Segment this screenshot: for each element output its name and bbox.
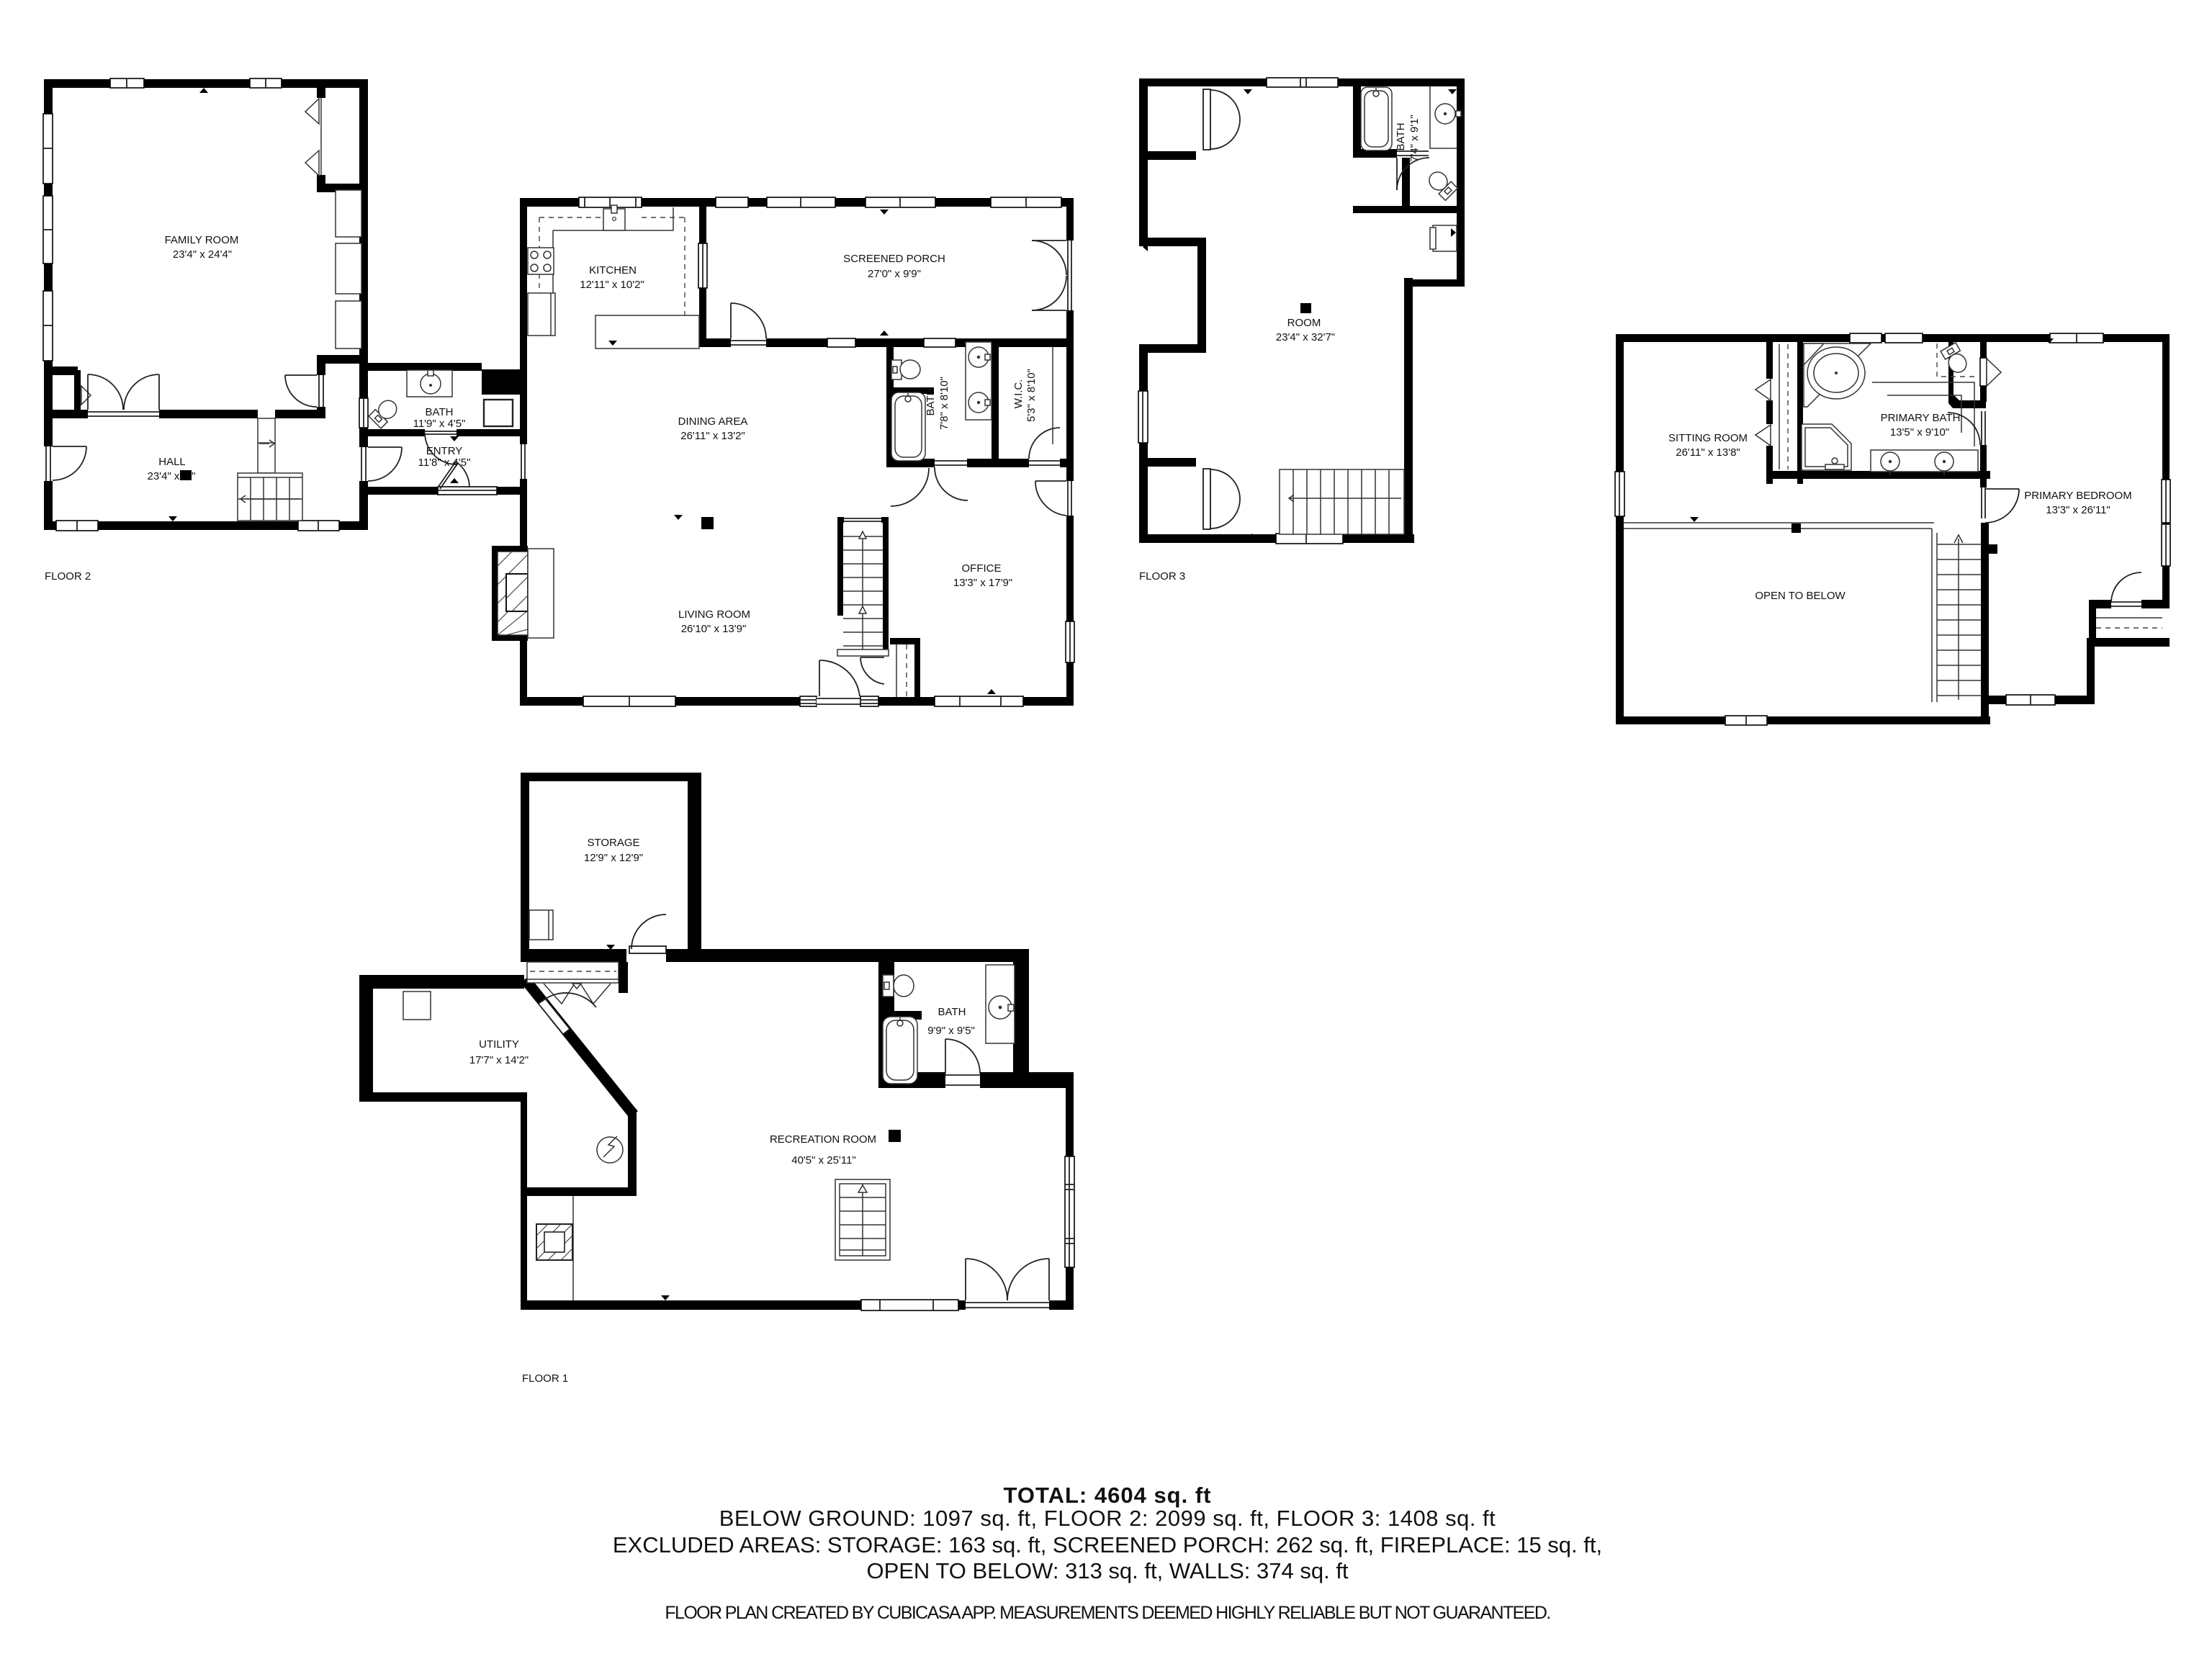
svg-text:HALL: HALL (158, 456, 186, 468)
svg-text:OPEN TO BELOW: 313 sq. ft, WAL: OPEN TO BELOW: 313 sq. ft, WALLS: 374 sq… (866, 1558, 1348, 1583)
svg-text:BATH: BATH (426, 406, 454, 418)
svg-text:40'5" x 25'11": 40'5" x 25'11" (791, 1154, 856, 1166)
svg-text:ENTRY: ENTRY (426, 445, 463, 457)
svg-text:26'11" x 13'8": 26'11" x 13'8" (1676, 446, 1740, 459)
svg-text:12'11" x 10'2": 12'11" x 10'2" (580, 279, 644, 291)
svg-text:7'8" x 8'10": 7'8" x 8'10" (938, 377, 950, 430)
svg-text:RECREATION ROOM: RECREATION ROOM (770, 1133, 876, 1146)
svg-text:DINING AREA: DINING AREA (678, 415, 748, 428)
svg-text:BATH: BATH (1395, 123, 1407, 151)
svg-text:BATH: BATH (925, 388, 937, 416)
svg-text:12'9" x 12'9": 12'9" x 12'9" (584, 852, 643, 864)
svg-text:5'3" x 8'10": 5'3" x 8'10" (1025, 369, 1038, 422)
svg-text:UTILITY: UTILITY (479, 1038, 519, 1051)
svg-text:SITTING ROOM: SITTING ROOM (1668, 432, 1748, 444)
svg-text:ROOM: ROOM (1287, 317, 1321, 329)
svg-text:EXCLUDED AREAS: STORAGE: 163 s: EXCLUDED AREAS: STORAGE: 163 sq. ft, SCR… (613, 1532, 1602, 1557)
svg-text:LIVING ROOM: LIVING ROOM (678, 608, 750, 621)
svg-text:26'11" x 13'2": 26'11" x 13'2" (680, 430, 745, 442)
svg-text:17'7" x 14'2": 17'7" x 14'2" (469, 1054, 529, 1066)
svg-text:13'3" x 17'9": 13'3" x 17'9" (953, 577, 1012, 589)
svg-text:FLOOR 2: FLOOR 2 (45, 570, 91, 583)
svg-text:FLOOR 3: FLOOR 3 (1139, 570, 1185, 583)
svg-text:27'0" x 9'9": 27'0" x 9'9" (868, 268, 921, 280)
svg-text:13'3" x 26'11": 13'3" x 26'11" (2046, 504, 2110, 516)
svg-text:FLOOR PLAN CREATED BY CUBICASA: FLOOR PLAN CREATED BY CUBICASA APP. MEAS… (665, 1603, 1550, 1623)
svg-text:13'5" x 9'10": 13'5" x 9'10" (1890, 426, 1949, 439)
svg-text:26'10" x 13'9": 26'10" x 13'9" (681, 623, 747, 635)
svg-text:OPEN TO BELOW: OPEN TO BELOW (1755, 590, 1845, 602)
svg-text:PRIMARY BATH: PRIMARY BATH (1881, 412, 1961, 424)
svg-text:OFFICE: OFFICE (962, 562, 1002, 575)
svg-text:7'4" x 9'1": 7'4" x 9'1" (1408, 114, 1421, 162)
svg-text:STORAGE: STORAGE (587, 837, 639, 849)
svg-text:BATH: BATH (938, 1006, 966, 1018)
svg-text:TOTAL: 4604 sq. ft: TOTAL: 4604 sq. ft (1003, 1483, 1211, 1508)
svg-text:11'8" x 4'5": 11'8" x 4'5" (418, 457, 471, 469)
svg-text:9'9" x 9'5": 9'9" x 9'5" (927, 1025, 975, 1037)
svg-text:11'9" x 4'5": 11'9" x 4'5" (413, 418, 466, 430)
svg-text:23'4" x 24'4": 23'4" x 24'4" (173, 248, 232, 261)
svg-text:PRIMARY BEDROOM: PRIMARY BEDROOM (2024, 490, 2131, 502)
svg-text:KITCHEN: KITCHEN (589, 264, 637, 276)
svg-text:W.I.C.: W.I.C. (1012, 379, 1025, 409)
svg-text:23'4" x 32'7": 23'4" x 32'7" (1276, 331, 1335, 343)
svg-text:BELOW GROUND: 1097 sq. ft, FLO: BELOW GROUND: 1097 sq. ft, FLOOR 2: 2099… (719, 1506, 1496, 1531)
svg-text:FAMILY ROOM: FAMILY ROOM (165, 234, 239, 246)
svg-text:SCREENED PORCH: SCREENED PORCH (843, 253, 945, 265)
svg-text:FLOOR 1: FLOOR 1 (522, 1372, 568, 1385)
